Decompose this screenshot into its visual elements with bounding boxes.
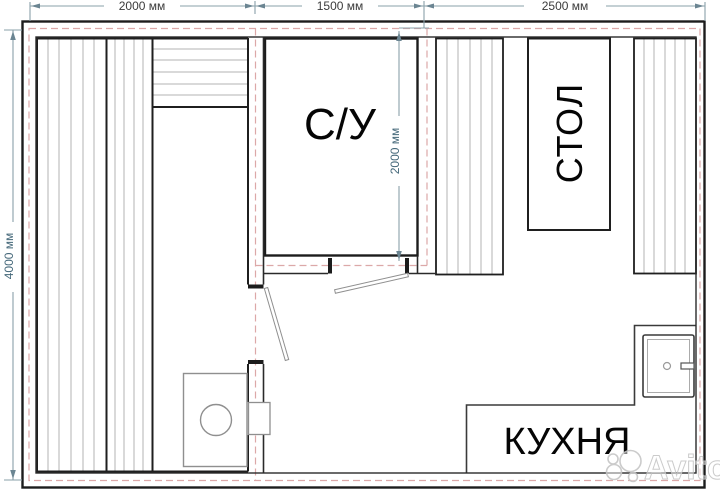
top-dimension-2500: 2500 мм [542, 0, 589, 13]
plan-background [0, 0, 720, 492]
table-label: СТОЛ [549, 83, 590, 183]
sink-icon [643, 335, 694, 397]
bathroom-label: С/У [304, 100, 377, 149]
top-dimension-2000: 2000 мм [119, 0, 166, 13]
floor-plan-svg: 2000 мм 1500 мм 2500 мм 4000 мм 2000 мм … [0, 0, 720, 492]
floor-plan: 2000 мм 1500 мм 2500 мм 4000 мм 2000 мм … [0, 0, 720, 492]
avito-watermark-text: Avito [644, 449, 720, 487]
bathroom-height-dimension: 2000 мм [388, 128, 402, 175]
top-dimension-1500: 1500 мм [317, 0, 364, 13]
avito-logo-icon [608, 454, 618, 464]
left-dimension-4000: 4000 мм [2, 233, 16, 280]
